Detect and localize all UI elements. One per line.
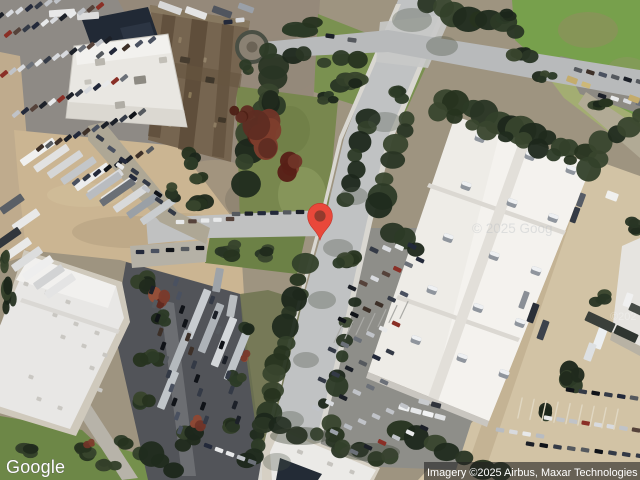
svg-text:©202: ©202 [610,311,636,323]
svg-text:Google: Google [6,457,65,477]
svg-text:© 2025 Goog: © 2025 Goog [472,221,553,236]
svg-text:Imagery ©2025 Airbus, Maxar Te: Imagery ©2025 Airbus, Maxar Technologies [427,467,638,479]
